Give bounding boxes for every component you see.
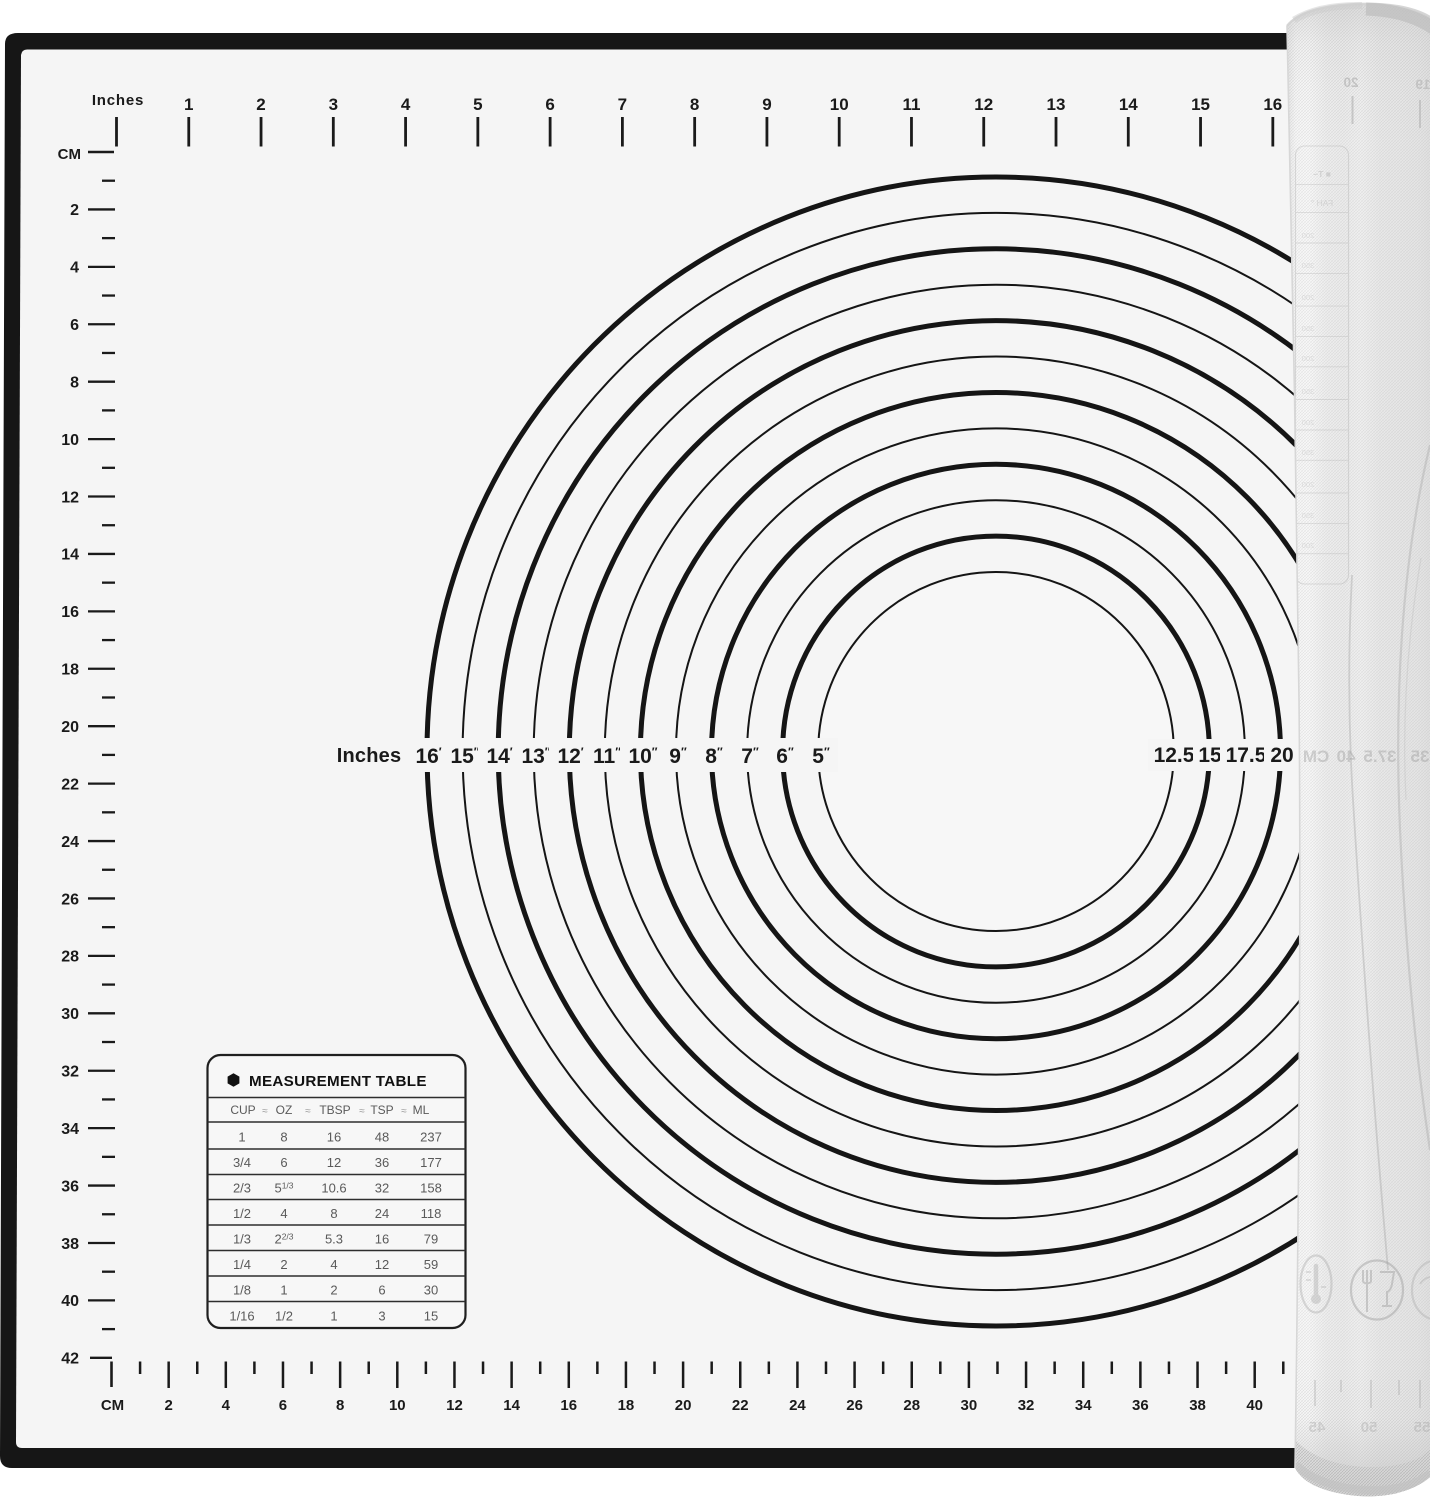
svg-text:≈: ≈ (401, 1106, 407, 1117)
svg-text:18: 18 (618, 1397, 635, 1414)
svg-text:8: 8 (280, 1130, 287, 1145)
svg-text:42: 42 (61, 1351, 79, 1368)
svg-text:4: 4 (70, 260, 79, 277)
svg-text:28: 28 (903, 1397, 920, 1414)
svg-text:14: 14 (1119, 95, 1138, 114)
svg-text:22: 22 (61, 776, 79, 793)
svg-text:■ T~: ■ T~ (1313, 169, 1331, 179)
svg-text:200: 200 (1302, 541, 1315, 550)
svg-text:1: 1 (184, 95, 193, 114)
svg-text:1/2: 1/2 (233, 1206, 251, 1221)
svg-text:20: 20 (1343, 75, 1358, 90)
svg-text:6: 6 (279, 1397, 287, 1414)
svg-text:48: 48 (375, 1130, 389, 1145)
svg-text:10: 10 (830, 95, 849, 114)
svg-text:30: 30 (424, 1283, 438, 1298)
svg-text:Inches: Inches (92, 92, 144, 109)
svg-text:30: 30 (961, 1397, 978, 1414)
svg-text:CUP: CUP (230, 1103, 255, 1117)
svg-text:CM: CM (58, 146, 81, 163)
svg-text:40: 40 (1246, 1397, 1263, 1414)
svg-text:32: 32 (375, 1181, 389, 1196)
svg-text:Inches: Inches (337, 745, 402, 767)
svg-text:200: 200 (1302, 354, 1315, 363)
svg-text:200: 200 (1302, 480, 1315, 489)
svg-text:34: 34 (61, 1121, 79, 1138)
svg-text:13: 13 (1047, 95, 1066, 114)
svg-text:118: 118 (421, 1206, 442, 1221)
svg-text:26: 26 (61, 891, 79, 908)
svg-text:16: 16 (61, 604, 79, 621)
svg-text:15: 15 (1191, 95, 1210, 114)
svg-text:CM: CM (101, 1397, 124, 1414)
svg-text:36: 36 (375, 1155, 389, 1170)
svg-text:200: 200 (1302, 293, 1315, 302)
svg-text:4: 4 (222, 1397, 231, 1414)
svg-text:35: 35 (1411, 747, 1430, 766)
svg-text:1: 1 (238, 1130, 245, 1145)
svg-text:16: 16 (375, 1232, 389, 1247)
svg-text:7: 7 (618, 95, 627, 114)
svg-text:8: 8 (70, 374, 79, 391)
svg-text:200: 200 (1302, 231, 1315, 240)
svg-text:11: 11 (902, 95, 920, 114)
svg-text:32: 32 (1018, 1397, 1035, 1414)
svg-text:79: 79 (424, 1232, 438, 1247)
svg-text:1: 1 (280, 1283, 287, 1298)
svg-text:12: 12 (327, 1155, 341, 1170)
svg-text:350: 350 (1302, 324, 1315, 333)
svg-text:38: 38 (1189, 1397, 1206, 1414)
svg-text:36: 36 (1132, 1397, 1149, 1414)
svg-text:12: 12 (375, 1257, 389, 1272)
svg-text:≈: ≈ (262, 1106, 268, 1117)
svg-text:16: 16 (1263, 95, 1282, 114)
svg-text:45: 45 (1309, 1419, 1326, 1436)
svg-text:12.5: 12.5 (1154, 744, 1195, 767)
svg-text:6: 6 (545, 95, 554, 114)
svg-text:28: 28 (61, 949, 79, 966)
svg-text:32: 32 (61, 1064, 79, 1081)
svg-text:12: 12 (446, 1397, 463, 1414)
svg-text:FAH °: FAH ° (1311, 198, 1333, 208)
svg-text:350: 350 (1302, 261, 1315, 270)
svg-text:ML: ML (413, 1103, 430, 1117)
svg-text:20: 20 (1270, 744, 1293, 767)
svg-text:OZ: OZ (276, 1103, 293, 1117)
svg-text:15: 15 (424, 1309, 438, 1324)
svg-text:19: 19 (1415, 77, 1430, 92)
svg-text:2/3: 2/3 (233, 1181, 251, 1196)
svg-text:22: 22 (732, 1397, 749, 1414)
svg-text:177: 177 (420, 1155, 442, 1170)
svg-text:26: 26 (846, 1397, 863, 1414)
svg-text:40: 40 (61, 1293, 79, 1310)
svg-text:20: 20 (675, 1397, 692, 1414)
svg-text:1/2: 1/2 (275, 1309, 293, 1324)
svg-text:34: 34 (1075, 1397, 1092, 1414)
svg-text:3/4: 3/4 (233, 1155, 251, 1170)
svg-text:350: 350 (1302, 511, 1315, 520)
svg-text:2: 2 (70, 202, 79, 219)
svg-text:24: 24 (375, 1206, 389, 1221)
svg-text:3: 3 (378, 1309, 385, 1324)
svg-text:8: 8 (690, 95, 699, 114)
svg-text:2: 2 (330, 1283, 337, 1298)
svg-text:14: 14 (503, 1397, 520, 1414)
svg-text:CM: CM (1303, 747, 1329, 766)
svg-text:158: 158 (420, 1181, 442, 1196)
svg-text:10: 10 (389, 1397, 406, 1414)
svg-text:24: 24 (61, 834, 79, 851)
svg-text:4: 4 (401, 95, 411, 114)
svg-text:2: 2 (164, 1397, 172, 1414)
svg-text:4: 4 (330, 1257, 337, 1272)
svg-text:55: 55 (1414, 1419, 1430, 1436)
svg-text:1/3: 1/3 (233, 1232, 251, 1247)
svg-text:15: 15 (1198, 744, 1222, 767)
svg-text:9: 9 (762, 95, 771, 114)
svg-text:6: 6 (378, 1283, 385, 1298)
svg-text:16: 16 (560, 1397, 577, 1414)
svg-text:4: 4 (280, 1206, 287, 1221)
svg-text:350: 350 (1302, 387, 1315, 396)
svg-text:350: 350 (1302, 448, 1315, 457)
svg-text:2: 2 (256, 95, 265, 114)
svg-text:MEASUREMENT TABLE: MEASUREMENT TABLE (249, 1073, 427, 1090)
svg-text:37.5: 37.5 (1363, 747, 1396, 766)
svg-text:24: 24 (789, 1397, 806, 1414)
svg-text:3: 3 (329, 95, 338, 114)
svg-text:36: 36 (61, 1178, 79, 1195)
svg-text:TSP: TSP (370, 1103, 393, 1117)
svg-text:59: 59 (424, 1257, 438, 1272)
svg-text:1/4: 1/4 (233, 1257, 251, 1272)
svg-text:6: 6 (280, 1155, 287, 1170)
svg-text:≈: ≈ (359, 1106, 365, 1117)
svg-text:5.3: 5.3 (325, 1232, 343, 1247)
svg-text:14: 14 (61, 547, 79, 564)
svg-text:8: 8 (336, 1397, 344, 1414)
svg-text:38: 38 (61, 1236, 79, 1253)
svg-text:20: 20 (61, 719, 79, 736)
svg-text:2: 2 (280, 1257, 287, 1272)
svg-text:17.5: 17.5 (1226, 744, 1267, 767)
svg-text:1: 1 (330, 1309, 337, 1324)
svg-text:50: 50 (1361, 1419, 1378, 1436)
svg-text:8: 8 (330, 1206, 337, 1221)
svg-text:200: 200 (1302, 418, 1315, 427)
svg-text:10.6: 10.6 (321, 1181, 346, 1196)
svg-text:40: 40 (1337, 747, 1356, 766)
svg-text:≈: ≈ (305, 1106, 311, 1117)
svg-text:TBSP: TBSP (319, 1103, 350, 1117)
svg-text:1/16: 1/16 (229, 1309, 254, 1324)
svg-text:18: 18 (61, 662, 79, 679)
svg-text:1/8: 1/8 (233, 1283, 251, 1298)
svg-text:16: 16 (327, 1130, 341, 1145)
svg-text:12: 12 (974, 95, 993, 114)
svg-text:237: 237 (420, 1130, 442, 1145)
svg-text:30: 30 (61, 1006, 79, 1023)
svg-text:12: 12 (61, 489, 79, 506)
svg-text:5: 5 (473, 95, 482, 114)
svg-text:6: 6 (70, 317, 79, 334)
svg-text:10: 10 (61, 432, 79, 449)
